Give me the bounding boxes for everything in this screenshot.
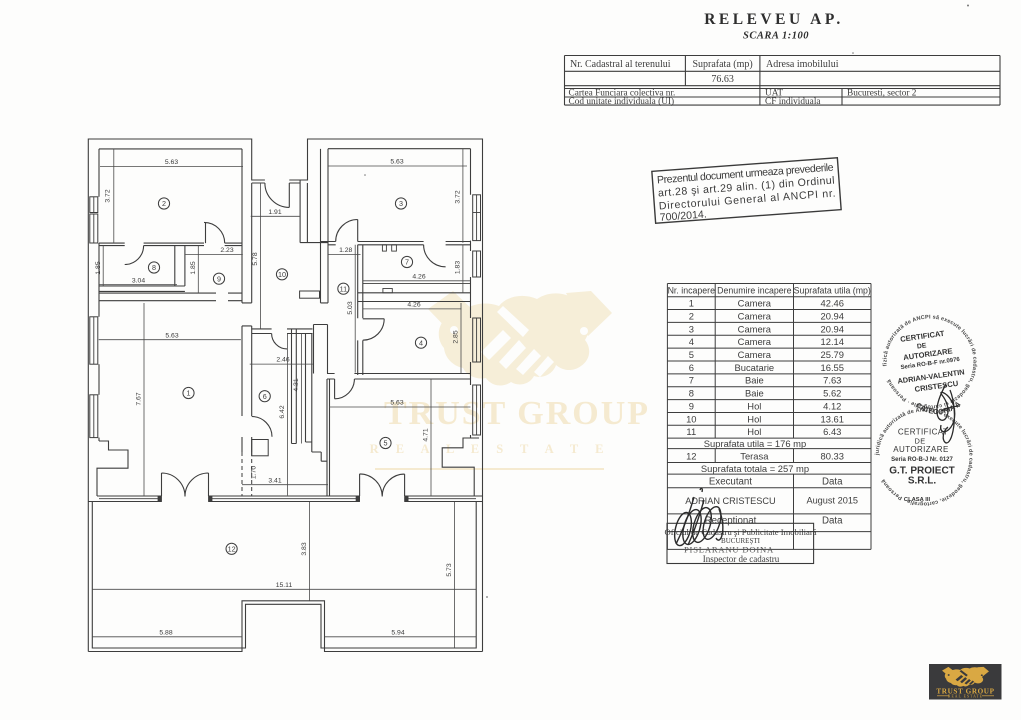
- svg-text:2.85: 2.85: [453, 330, 460, 343]
- svg-text:Camera: Camera: [738, 349, 772, 360]
- svg-text:Suprafata utila = 176 mp: Suprafata utila = 176 mp: [704, 438, 806, 449]
- svg-text:6.42: 6.42: [279, 405, 286, 418]
- svg-text:7.63: 7.63: [823, 375, 841, 386]
- svg-text:Baie: Baie: [745, 388, 764, 399]
- svg-text:Baie: Baie: [745, 375, 764, 386]
- svg-text:3.83: 3.83: [301, 542, 308, 555]
- svg-text:SCARA 1:100: SCARA 1:100: [743, 31, 809, 42]
- svg-text:Suprafata (mp): Suprafata (mp): [692, 59, 752, 70]
- svg-text:Bucuresti, sector 2: Bucuresti, sector 2: [847, 89, 917, 99]
- svg-text:Camera: Camera: [738, 298, 772, 309]
- svg-text:13.61: 13.61: [821, 413, 844, 424]
- svg-text:Data: Data: [822, 477, 843, 488]
- svg-text:TRUST GROUP: TRUST GROUP: [384, 395, 650, 432]
- svg-text:2: 2: [689, 310, 694, 321]
- svg-text:6.43: 6.43: [823, 426, 841, 437]
- svg-text:5.88: 5.88: [159, 629, 172, 636]
- svg-text:CERTIFICAT: CERTIFICAT: [900, 329, 946, 344]
- svg-text:5.63: 5.63: [390, 400, 403, 407]
- svg-text:3.41: 3.41: [268, 477, 281, 484]
- svg-text:3.04: 3.04: [132, 277, 145, 284]
- svg-text:80.33: 80.33: [821, 450, 844, 461]
- svg-text:12: 12: [228, 544, 236, 553]
- svg-text:Suprafata totala = 257 mp: Suprafata totala = 257 mp: [701, 463, 809, 474]
- svg-text:2.23: 2.23: [220, 247, 233, 254]
- svg-text:1.28: 1.28: [339, 247, 352, 254]
- svg-text:Bucatarie: Bucatarie: [735, 362, 775, 373]
- svg-text:9: 9: [217, 274, 221, 283]
- svg-text:16.55: 16.55: [821, 362, 844, 373]
- svg-text:15.11: 15.11: [276, 582, 293, 589]
- svg-text:AUTORIZARE: AUTORIZARE: [893, 445, 948, 454]
- svg-text:1.85: 1.85: [95, 261, 102, 274]
- svg-text:20.94: 20.94: [821, 310, 844, 321]
- svg-text:Adresa imobilului: Adresa imobilului: [766, 59, 839, 70]
- svg-text:5.03: 5.03: [347, 301, 354, 314]
- svg-text:1: 1: [187, 389, 191, 398]
- svg-text:12.14: 12.14: [821, 336, 844, 347]
- svg-text:10: 10: [278, 270, 286, 279]
- svg-text:R E A L E S T A T E: R E A L E S T A T E: [370, 442, 611, 456]
- svg-text:5.62: 5.62: [823, 388, 841, 399]
- svg-text:Camera: Camera: [738, 323, 772, 334]
- svg-text:Receptionat: Receptionat: [705, 516, 757, 527]
- svg-text:6: 6: [263, 392, 267, 401]
- svg-text:10: 10: [686, 413, 696, 424]
- svg-text:Seria RO-B-J Nr. 0127: Seria RO-B-J Nr. 0127: [891, 457, 953, 463]
- svg-text:CF individuala: CF individuala: [765, 97, 821, 107]
- svg-text:5.78: 5.78: [252, 252, 259, 265]
- svg-text:4: 4: [419, 338, 423, 347]
- svg-text:700/2014.: 700/2014.: [659, 208, 707, 223]
- svg-text:2: 2: [162, 199, 166, 208]
- svg-text:CLASA III: CLASA III: [904, 497, 931, 503]
- svg-text:1.83: 1.83: [455, 261, 462, 274]
- svg-text:Hol: Hol: [747, 400, 761, 411]
- svg-text:Oficiul de Cadastru şi Publici: Oficiul de Cadastru şi Publicitate Imobi…: [664, 527, 816, 537]
- svg-text:3.72: 3.72: [105, 189, 112, 202]
- svg-text:6: 6: [689, 362, 694, 373]
- svg-text:4: 4: [689, 336, 694, 347]
- svg-text:3: 3: [689, 323, 694, 334]
- svg-text:Hol: Hol: [747, 426, 761, 437]
- svg-text:5: 5: [384, 439, 388, 448]
- svg-text:7: 7: [689, 375, 694, 386]
- svg-text:12: 12: [686, 450, 696, 461]
- svg-text:Data: Data: [822, 516, 843, 527]
- svg-text:Cod unitate individuala (UI): Cod unitate individuala (UI): [569, 96, 675, 107]
- svg-text:Nr. Cadastral al terenului: Nr. Cadastral al terenului: [570, 59, 671, 70]
- svg-text:Suprafata utila (mp): Suprafata utila (mp): [794, 285, 871, 295]
- svg-text:S.R.L.: S.R.L.: [908, 475, 937, 486]
- svg-text:42.46: 42.46: [821, 298, 844, 309]
- svg-text:5.63: 5.63: [165, 332, 178, 339]
- svg-text:4.26: 4.26: [412, 273, 425, 280]
- svg-text:5.94: 5.94: [391, 630, 404, 637]
- svg-text:Camera: Camera: [738, 310, 772, 321]
- svg-text:Nr. incapere: Nr. incapere: [668, 285, 716, 295]
- svg-text:4.31: 4.31: [293, 378, 300, 391]
- svg-text:11: 11: [686, 426, 696, 437]
- svg-text:Camera: Camera: [738, 336, 772, 347]
- svg-text:7: 7: [405, 258, 409, 267]
- svg-text:1.85: 1.85: [190, 261, 197, 274]
- svg-text:5.63: 5.63: [390, 159, 403, 166]
- svg-text:7.67: 7.67: [136, 392, 143, 405]
- svg-text:11: 11: [340, 284, 347, 293]
- svg-text:RELEVEU AP.: RELEVEU AP.: [704, 11, 844, 28]
- svg-text:Hol: Hol: [747, 413, 761, 424]
- svg-text:Terasa: Terasa: [740, 450, 769, 461]
- svg-text:76.63: 76.63: [711, 74, 734, 85]
- svg-text:9: 9: [689, 400, 694, 411]
- svg-text:8: 8: [689, 388, 694, 399]
- svg-text:3: 3: [399, 199, 403, 208]
- svg-text:Denumire incapere: Denumire incapere: [717, 285, 791, 295]
- svg-text:August 2015: August 2015: [806, 496, 858, 506]
- svg-text:5.73: 5.73: [446, 563, 453, 576]
- svg-text:8: 8: [152, 263, 156, 272]
- svg-text:4.26: 4.26: [407, 302, 420, 309]
- svg-text:4.71: 4.71: [423, 428, 430, 441]
- svg-text:4.12: 4.12: [823, 400, 841, 411]
- svg-text:3.72: 3.72: [455, 190, 462, 203]
- svg-text:20.94: 20.94: [821, 323, 844, 334]
- svg-text:REAL ESTATE: REAL ESTATE: [948, 695, 983, 699]
- svg-text:5.63: 5.63: [165, 159, 178, 166]
- svg-text:1.91: 1.91: [268, 209, 281, 216]
- svg-text:25.79: 25.79: [821, 349, 844, 360]
- svg-text:ADRIAN CRISTESCU: ADRIAN CRISTESCU: [685, 496, 775, 506]
- svg-text:1: 1: [689, 298, 694, 309]
- svg-text:Inspector de cadastru: Inspector de cadastru: [703, 554, 780, 564]
- svg-text:Executant: Executant: [709, 477, 752, 488]
- svg-text:1.70: 1.70: [251, 466, 258, 479]
- svg-text:DE: DE: [914, 437, 925, 446]
- svg-text:5: 5: [689, 349, 694, 360]
